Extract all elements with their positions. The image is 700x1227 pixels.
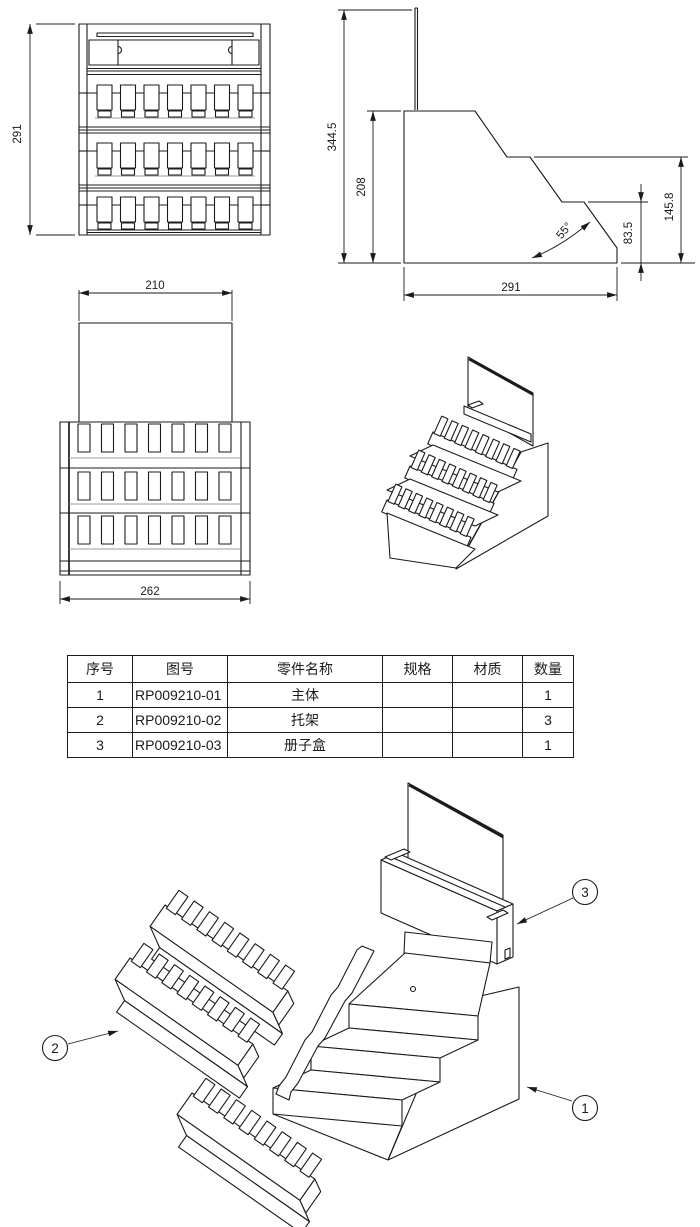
bom-header-part-name: 零件名称: [228, 656, 383, 683]
bom-cell-part-name: 册子盒: [228, 733, 383, 758]
bom-row: 2 RP009210-02 托架 3: [68, 708, 574, 733]
drawing-sheet: 291 344.5 208 55°: [0, 0, 700, 1227]
balloon-3: 3: [517, 880, 598, 925]
dim-top-panel-width: 210: [79, 280, 232, 321]
bom-table: 序号 图号 零件名称 规格 材质 数量 1 RP009210-01 主体 1 2…: [67, 655, 574, 758]
dim-side-total-height: 344.5: [327, 10, 412, 263]
dim-label: 83.5: [623, 222, 635, 244]
exploded-view: 1 2 3: [43, 783, 598, 1227]
dim-front-height: 291: [12, 24, 75, 235]
isometric-view: [382, 357, 548, 569]
bom-cell-drawing-no: RP009210-02: [133, 708, 228, 733]
bom-cell-drawing-no: RP009210-03: [133, 733, 228, 758]
balloon-label: 2: [51, 1041, 59, 1056]
bom-header-no: 序号: [68, 656, 133, 683]
front-top-bar: [97, 33, 253, 37]
dim-label: 291: [501, 282, 520, 294]
bom-cell-no: 3: [68, 733, 133, 758]
bom-cell-material: [453, 683, 523, 708]
bom-header-qty: 数量: [523, 656, 574, 683]
bom-cell-part-name: 托架: [228, 708, 383, 733]
dim-label: 145.8: [664, 193, 676, 222]
cad-drawing: 291 344.5 208 55°: [0, 0, 700, 1227]
bom-header-spec: 规格: [383, 656, 453, 683]
dim-label: 291: [12, 124, 24, 143]
front-booklet-box: [89, 40, 259, 65]
balloon-label: 1: [581, 1101, 589, 1116]
bom-header-material: 材质: [453, 656, 523, 683]
bom-cell-material: [453, 733, 523, 758]
balloon-2: 2: [43, 1031, 119, 1061]
front-view: 291: [12, 24, 270, 235]
bom-cell-drawing-no: RP009210-01: [133, 683, 228, 708]
bom-cell-spec: [383, 733, 453, 758]
dim-side-body-height: 208: [356, 111, 401, 263]
bom-cell-qty: 1: [523, 733, 574, 758]
balloon-label: 3: [581, 885, 589, 900]
exploded-main-body: [273, 932, 519, 1160]
bom-header-drawing-no: 图号: [133, 656, 228, 683]
bom-cell-material: [453, 708, 523, 733]
balloon-1: 1: [527, 1087, 598, 1121]
dim-label: 210: [145, 280, 164, 292]
bom-cell-spec: [383, 683, 453, 708]
side-view: 344.5 208 55° 83.5 145.8: [327, 8, 695, 301]
bom-row: 1 RP009210-01 主体 1: [68, 683, 574, 708]
dim-side-depth: 291: [404, 267, 617, 301]
bom-header-row: 序号 图号 零件名称 规格 材质 数量: [68, 656, 574, 683]
bom-cell-spec: [383, 708, 453, 733]
bom-cell-qty: 1: [523, 683, 574, 708]
bom-cell-qty: 3: [523, 708, 574, 733]
bom-cell-part-name: 主体: [228, 683, 383, 708]
bom-cell-no: 2: [68, 708, 133, 733]
bom-cell-no: 1: [68, 683, 133, 708]
bom-row: 3 RP009210-03 册子盒 1: [68, 733, 574, 758]
side-body-profile: [404, 111, 617, 263]
dim-label: 344.5: [327, 123, 339, 152]
top-view: 210 262: [60, 280, 250, 604]
dim-label: 208: [356, 177, 368, 196]
dim-top-body-width: 262: [60, 581, 250, 604]
top-back-panel: [79, 323, 232, 422]
dim-label: 262: [140, 586, 159, 598]
